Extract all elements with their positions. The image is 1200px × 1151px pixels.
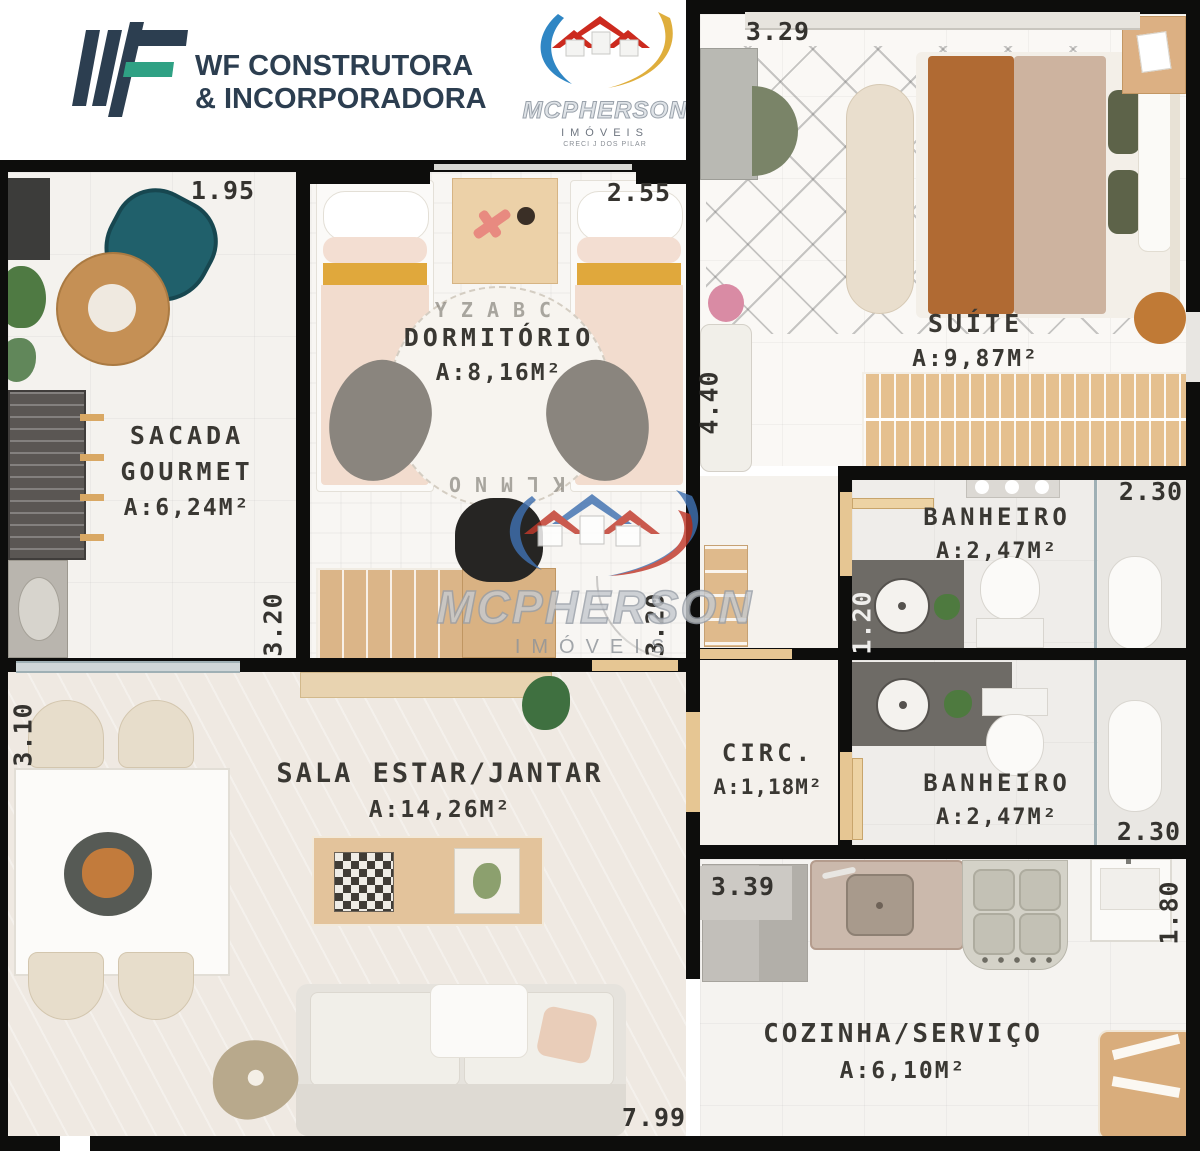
mcpherson-header-icon <box>530 8 680 92</box>
wf-logo-icon <box>70 22 190 117</box>
dimension-label: 3.20 <box>258 578 288 670</box>
sideboard <box>300 672 552 698</box>
dimension-label: 7.99 <box>608 1102 700 1132</box>
table-plate <box>88 284 136 332</box>
stove <box>962 860 1068 970</box>
wf-brand-text: WF CONSTRUTORA & INCORPORADORA <box>195 50 487 117</box>
room-name: SUÍTE <box>868 306 1083 342</box>
wall <box>1186 0 1200 1151</box>
floorplan-canvas: WF CONSTRUTORA & INCORPORADORA MCPHERSON… <box>0 0 1200 1151</box>
wf-brand-prefix: WF <box>195 50 240 82</box>
tank-basin <box>1100 868 1160 910</box>
suite-bench <box>846 84 914 314</box>
header: WF CONSTRUTORA & INCORPORADORA MCPHERSON… <box>0 0 686 160</box>
toilet-tank <box>982 688 1048 716</box>
wall <box>686 658 700 712</box>
suite-bed-blanket-beige <box>1014 56 1106 314</box>
room-name: BANHEIRO <box>872 766 1122 801</box>
entry-door-gap <box>60 1136 90 1151</box>
suite-side-window <box>1186 312 1200 382</box>
pouf-tassel <box>246 1068 265 1087</box>
sofa-pillow-peach <box>535 1005 598 1065</box>
dormitorio-window <box>434 164 632 170</box>
wall <box>686 845 1200 859</box>
mcpherson-watermark-name: MCPHERSON <box>435 584 755 630</box>
room-name: SACADA <box>92 418 282 454</box>
burner <box>973 913 1015 955</box>
wardrobe-rail <box>864 418 1186 421</box>
suite-bed-blanket-orange <box>928 56 1014 314</box>
monstera-plant <box>522 676 570 730</box>
mcpherson-watermark: MCPHERSON IMÓVEIS <box>435 488 755 658</box>
room-area: A:6,24M² <box>92 495 282 521</box>
sink-round-suite <box>874 578 930 634</box>
suite-label: SUÍTE A:9,87M² <box>868 306 1083 372</box>
dining-chair-2 <box>118 700 194 768</box>
banheiro-social-door-leaf <box>852 758 863 840</box>
table-tray <box>454 848 520 914</box>
room-area: A:8,16M² <box>384 360 614 386</box>
suite-pillow-green-2 <box>1108 170 1140 234</box>
washing-machine <box>1098 1030 1194 1140</box>
dimension-label: 3.10 <box>8 686 38 782</box>
dining-chair-1 <box>28 700 104 768</box>
sacada-sink-counter <box>8 560 68 658</box>
dimension-label: 1.95 <box>182 176 264 204</box>
wall <box>686 812 700 845</box>
dimension-label: 2.30 <box>1110 818 1188 844</box>
toy-top-icon <box>517 207 535 225</box>
dimension-label: 4.40 <box>694 342 724 462</box>
sacada-label: SACADA GOURMET A:6,24M² <box>92 418 282 521</box>
skewer-handle-4 <box>80 534 104 541</box>
round-table <box>56 252 170 366</box>
dormitorio-label: DORMITÓRIO A:8,16M² <box>384 320 614 386</box>
room-area: A:14,26M² <box>255 797 625 823</box>
sofa <box>296 984 626 1136</box>
stove-knobs <box>977 957 1053 963</box>
room-area: A:1,18M² <box>694 775 842 799</box>
room-name: SALA ESTAR/JANTAR <box>255 754 625 793</box>
vanity-plant-suite <box>934 594 960 620</box>
mcpherson-header-caption: CRECI J DOS PILAR <box>520 141 690 148</box>
towel-roll <box>1035 480 1049 494</box>
room-area: A:9,87M² <box>868 346 1083 372</box>
wall <box>0 1136 1200 1151</box>
sofa-backrest <box>296 1084 626 1136</box>
sacada-sink <box>18 577 60 641</box>
suite-headboard <box>1170 60 1180 310</box>
cozinha-label: COZINHA/SERVIÇO A:6,10M² <box>748 1016 1058 1084</box>
wall <box>296 168 310 670</box>
wall <box>686 845 700 979</box>
wall <box>296 160 430 184</box>
tray-sprigs <box>473 863 501 899</box>
room-name: DORMITÓRIO <box>384 320 614 356</box>
kids-center-table <box>452 178 558 284</box>
wf-brand-line2: & INCORPORADORA <box>195 83 487 116</box>
nightstand-paper <box>1137 31 1172 73</box>
wf-brand-rest: CONSTRUTORA <box>248 50 473 82</box>
room-area: A:2,47M² <box>872 539 1122 564</box>
mcpherson-header-logo: MCPHERSON IMÓVEIS CRECI J DOS PILAR <box>520 8 690 148</box>
coffee-table <box>312 836 544 926</box>
mcpherson-header-name: MCPHERSON <box>520 97 690 125</box>
room-area: A:2,47M² <box>872 805 1122 830</box>
toilet-suite <box>976 556 1044 650</box>
room-name: COZINHA/SERVIÇO <box>748 1016 1058 1054</box>
kids-bed-left-throw-yellow <box>323 263 427 285</box>
kids-bed-left-pillow <box>323 191 429 241</box>
suite-pillow-green-1 <box>1108 90 1140 154</box>
kids-bed-right-throw-yellow <box>577 263 681 285</box>
sacada-sliding-door <box>16 661 240 673</box>
dimension-label: 3.29 <box>736 16 820 46</box>
dining-table <box>14 768 230 976</box>
chessboard <box>334 852 394 912</box>
mcpherson-watermark-icon <box>480 488 710 584</box>
wall <box>838 648 1200 660</box>
suite-side-table <box>1134 292 1186 344</box>
toilet-social <box>982 688 1048 778</box>
kitchen-sink-counter <box>810 860 964 950</box>
dimension-label: 3.39 <box>702 872 784 900</box>
toilet-tank <box>976 618 1044 648</box>
banheiro-suite-door <box>840 492 852 576</box>
kids-bed-right-pillow2 <box>577 237 681 263</box>
kids-bed-left-pillow2 <box>323 237 427 263</box>
banheiro-social-label: BANHEIRO A:2,47M² <box>872 766 1122 830</box>
room-name: GOURMET <box>92 454 282 490</box>
ribbon <box>1112 1076 1181 1098</box>
suite-pillow-white <box>1138 80 1172 252</box>
suite-flower-pot <box>708 284 744 322</box>
dimension-label: 1.80 <box>1154 866 1184 958</box>
dimension-label: 2.30 <box>1112 478 1190 504</box>
circulacao-label: CIRC. A:1,18M² <box>694 736 842 799</box>
alphabet-rug-letters-top: YZABC <box>390 298 610 322</box>
vanity-plant-social <box>944 690 972 718</box>
suite-tv-cabinet <box>700 48 758 180</box>
sofa-blanket <box>430 984 528 1058</box>
burner <box>1019 913 1061 955</box>
burner <box>973 869 1015 911</box>
sink-drain <box>898 602 906 610</box>
wall <box>0 168 8 1138</box>
room-name: BANHEIRO <box>872 500 1122 535</box>
toilet-bowl <box>980 556 1040 620</box>
burner <box>1019 869 1061 911</box>
towel-roll <box>1005 480 1019 494</box>
sink-drain <box>899 701 907 709</box>
ribbon <box>1112 1034 1180 1060</box>
grill <box>8 390 86 560</box>
corner-shelf <box>8 178 50 260</box>
shower-tray-suite <box>1108 556 1162 650</box>
mcpherson-header-subtitle: IMÓVEIS <box>520 127 690 139</box>
towel-roll <box>975 480 989 494</box>
suite-wardrobe <box>862 372 1188 468</box>
banheiro-suite-label: BANHEIRO A:2,47M² <box>872 500 1122 564</box>
sink-round-social <box>876 678 930 732</box>
kitchen-sink <box>846 874 914 936</box>
sala-label: SALA ESTAR/JANTAR A:14,26M² <box>255 754 625 823</box>
sink-drain <box>876 902 883 909</box>
mcpherson-watermark-subtitle: IMÓVEIS <box>435 636 755 659</box>
dimension-label: 2.55 <box>598 178 680 206</box>
dimension-label: 1.20 <box>848 578 876 666</box>
room-area: A:6,10M² <box>748 1058 1058 1084</box>
room-name: CIRC. <box>694 736 842 771</box>
